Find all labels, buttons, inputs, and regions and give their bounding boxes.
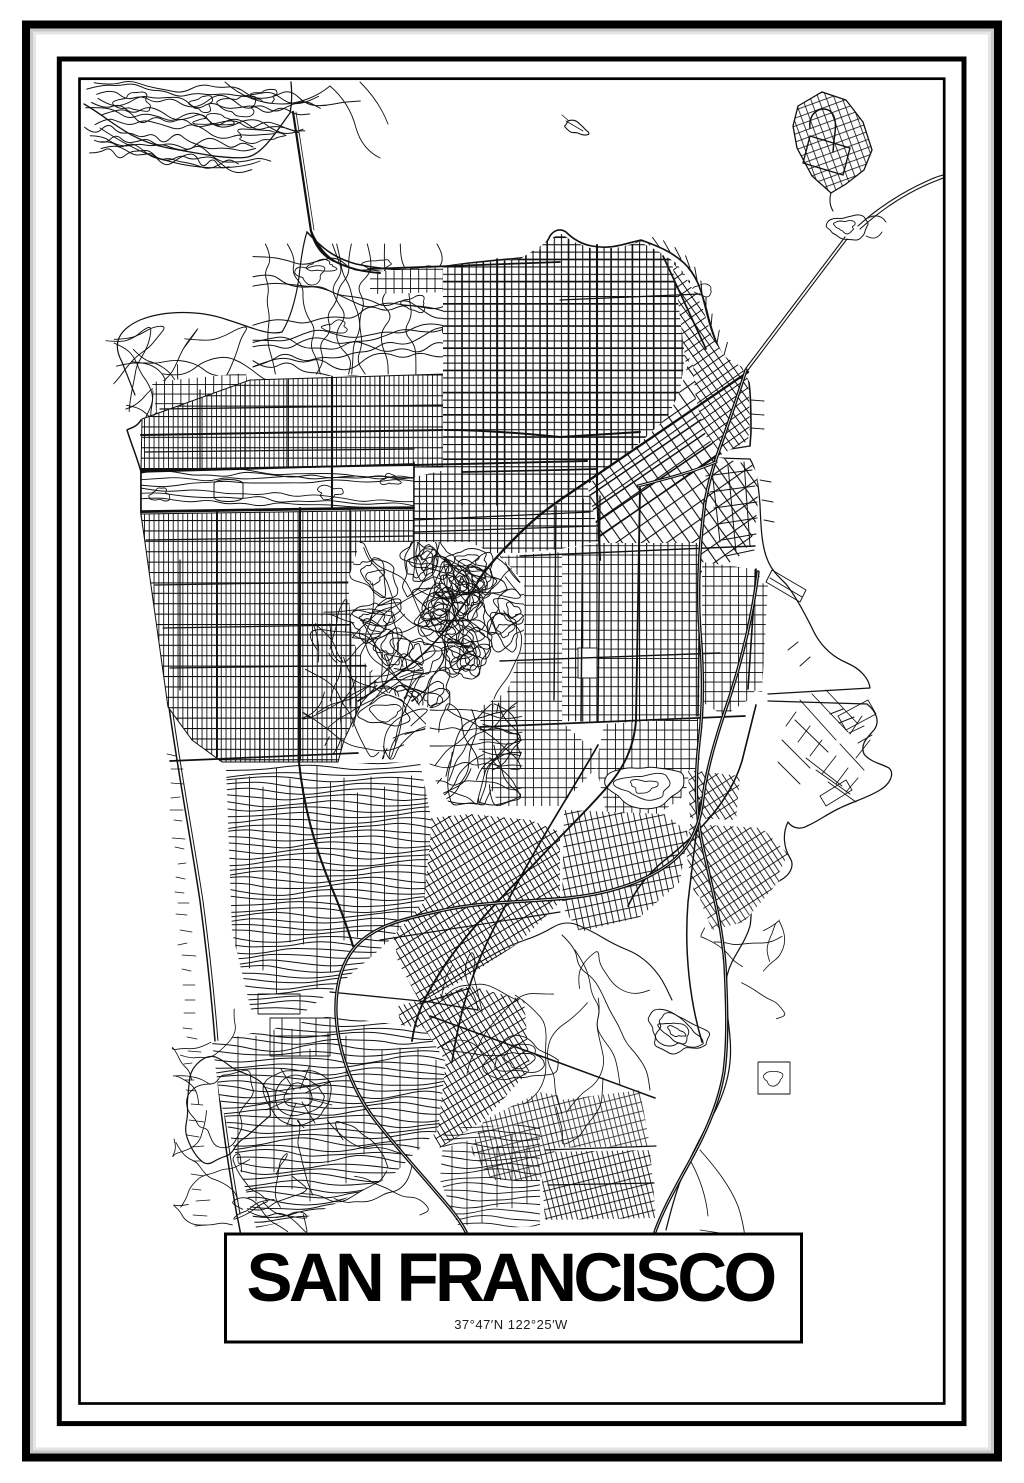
svg-text:37°47′N 122°25′W: 37°47′N 122°25′W: [454, 1317, 568, 1332]
svg-text:SAN FRANCISCO: SAN FRANCISCO: [247, 1239, 775, 1316]
